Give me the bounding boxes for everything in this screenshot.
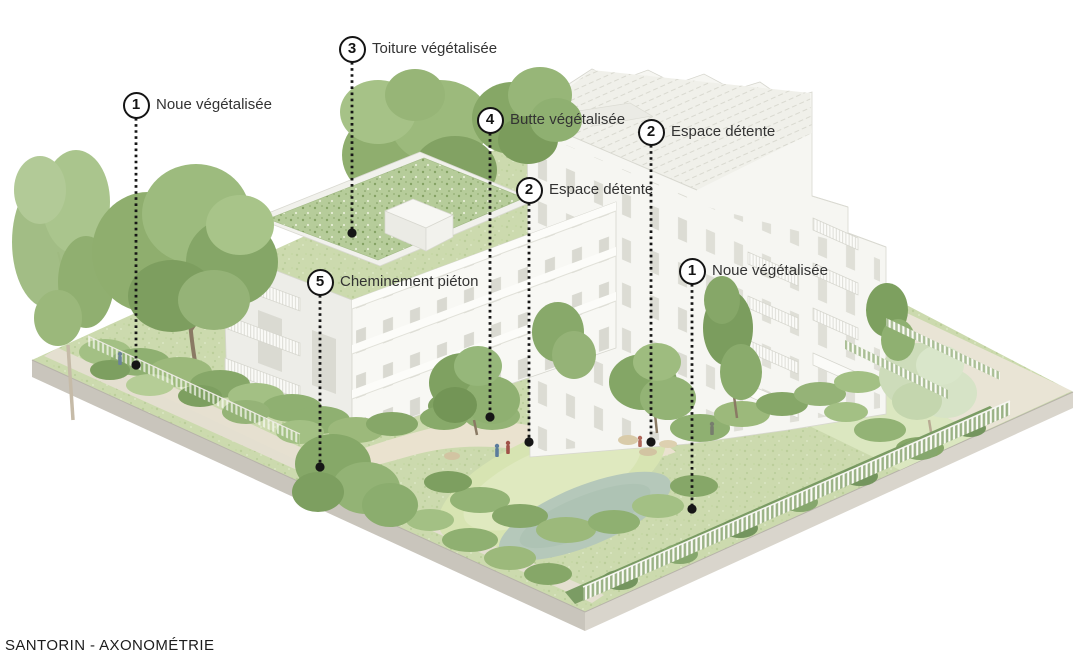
- callout-label: Noue végétalisée: [156, 95, 272, 114]
- callout-number-badge: 2: [638, 119, 665, 146]
- person: [495, 444, 499, 457]
- callout-number-badge: 3: [339, 36, 366, 63]
- callout-number-badge: 2: [516, 177, 543, 204]
- figure-caption: SANTORIN - AXONOMÉTRIE: [5, 637, 214, 654]
- person: [506, 441, 510, 454]
- person: [638, 436, 642, 447]
- callout-label: Toiture végétalisée: [372, 39, 497, 58]
- callout-number-badge: 1: [679, 258, 706, 285]
- axonometric-figure: 1Noue végétalisée3Toiture végétalisée4Bu…: [0, 0, 1081, 661]
- callout-label: Cheminement piéton: [340, 272, 478, 291]
- callout-label: Noue végétalisée: [712, 261, 828, 280]
- callout-number-badge: 1: [123, 92, 150, 119]
- callout-label: Espace détente: [549, 180, 653, 199]
- callout-label: Butte végétalisée: [510, 110, 625, 129]
- person: [710, 422, 714, 435]
- callout-label: Espace détente: [671, 122, 775, 141]
- callout-number-badge: 4: [477, 107, 504, 134]
- callout-number-badge: 5: [307, 269, 334, 296]
- person: [118, 352, 122, 365]
